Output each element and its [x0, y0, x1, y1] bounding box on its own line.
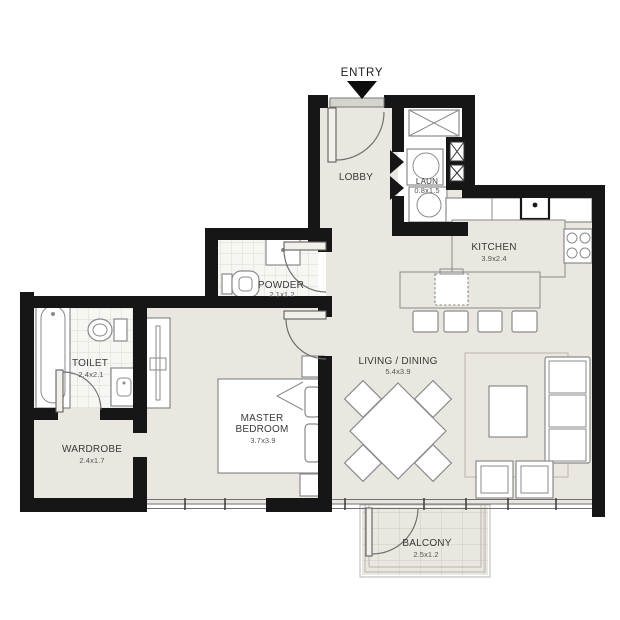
kitchen-counter-top	[446, 198, 592, 222]
sofa-seat	[476, 461, 513, 498]
room-label-wardrobe: WARDROBE	[62, 444, 122, 455]
sofa-seat	[516, 461, 553, 498]
room-label-master-2: BEDROOM	[235, 424, 288, 435]
room-label-laundry: LAUN	[416, 177, 438, 186]
bar-stool	[444, 311, 468, 332]
bathtub-drain-icon	[51, 312, 55, 316]
room-label-living: LIVING / DINING	[358, 356, 437, 367]
bar-stool	[413, 311, 438, 332]
room-label-balcony: BALCONY	[402, 538, 451, 549]
bedroom-window	[147, 498, 268, 510]
room-dims-powder: 2.1x1.2	[269, 290, 294, 299]
room-dims-kitchen: 3.9x2.4	[481, 254, 506, 263]
entry-arrow-icon	[347, 81, 377, 99]
entry-label: ENTRY	[341, 67, 384, 79]
room-dims-toilet: 2.4x2.1	[78, 370, 103, 379]
room-label-kitchen: KITCHEN	[471, 242, 516, 253]
island-sink	[435, 274, 468, 305]
balcony-door-leaf	[366, 508, 372, 556]
room-dims-laundry: 0.8x1.5	[414, 186, 439, 195]
powder-wc-tank	[222, 274, 232, 294]
bedroom-door-leaf	[284, 311, 326, 319]
room-label-master-1: MASTER	[241, 413, 284, 424]
pillow	[305, 424, 320, 462]
powder-door-leaf	[284, 242, 326, 250]
room-label-toilet: TOILET	[72, 358, 108, 369]
entry-marker: ENTRY	[341, 67, 384, 99]
bar-stool	[512, 311, 537, 332]
kitchen-island	[400, 272, 540, 308]
bar-stool	[478, 311, 502, 332]
entry-threshold	[330, 98, 384, 107]
room-dims-wardrobe: 2.4x1.7	[79, 456, 104, 465]
entry-door-leaf	[328, 108, 336, 162]
wc-bowl	[88, 319, 112, 341]
pillow	[305, 387, 320, 417]
duct-shaft	[409, 110, 459, 136]
powder-wc-bowl	[232, 271, 259, 297]
dining-set	[345, 381, 452, 482]
vanity-faucet-icon	[123, 382, 126, 385]
wc-tank	[114, 319, 127, 341]
toilet-door-leaf	[56, 370, 63, 412]
room-dims-living: 5.4x3.9	[385, 367, 410, 376]
floor-plan-canvas: ENTRY LOBBY LAUN 0.8x1.5 KITCHEN 3.9x2.4…	[0, 0, 620, 620]
room-dims-master: 3.7x3.9	[250, 436, 275, 445]
room-label-lobby: LOBBY	[339, 172, 373, 183]
coffee-table	[489, 386, 527, 437]
floor-plan: ENTRY LOBBY LAUN 0.8x1.5 KITCHEN 3.9x2.4…	[0, 0, 620, 620]
kitchen-faucet-icon	[533, 203, 538, 208]
room-dims-balcony: 2.5x1.2	[413, 550, 438, 559]
sofa-right	[545, 357, 590, 463]
